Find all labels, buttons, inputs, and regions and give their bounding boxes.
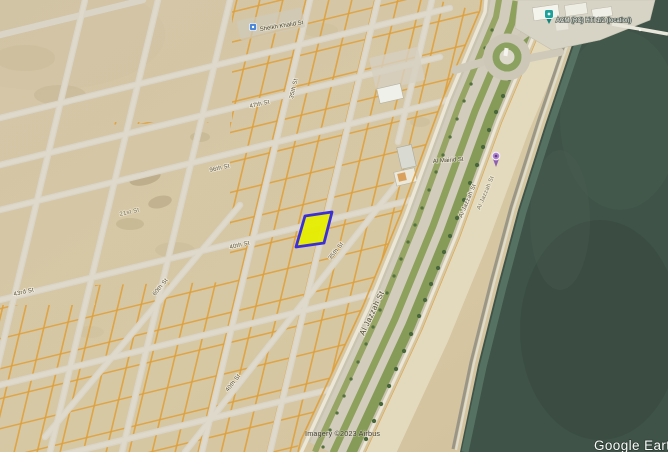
poi-label: ACM (RC) HTI 1/2 (location) — [556, 18, 631, 24]
google-earth-map[interactable]: Sheikh Khalid St ACM (RC) HTI 1/2 (locat… — [0, 0, 668, 452]
imagery-attribution: Imagery ©2023 Airbus — [305, 429, 380, 438]
google-earth-logo: Google Earth — [594, 438, 668, 452]
blue-poi-icon[interactable] — [250, 24, 257, 31]
satellite-canvas[interactable]: Sheikh Khalid St ACM (RC) HTI 1/2 (locat… — [0, 0, 668, 452]
